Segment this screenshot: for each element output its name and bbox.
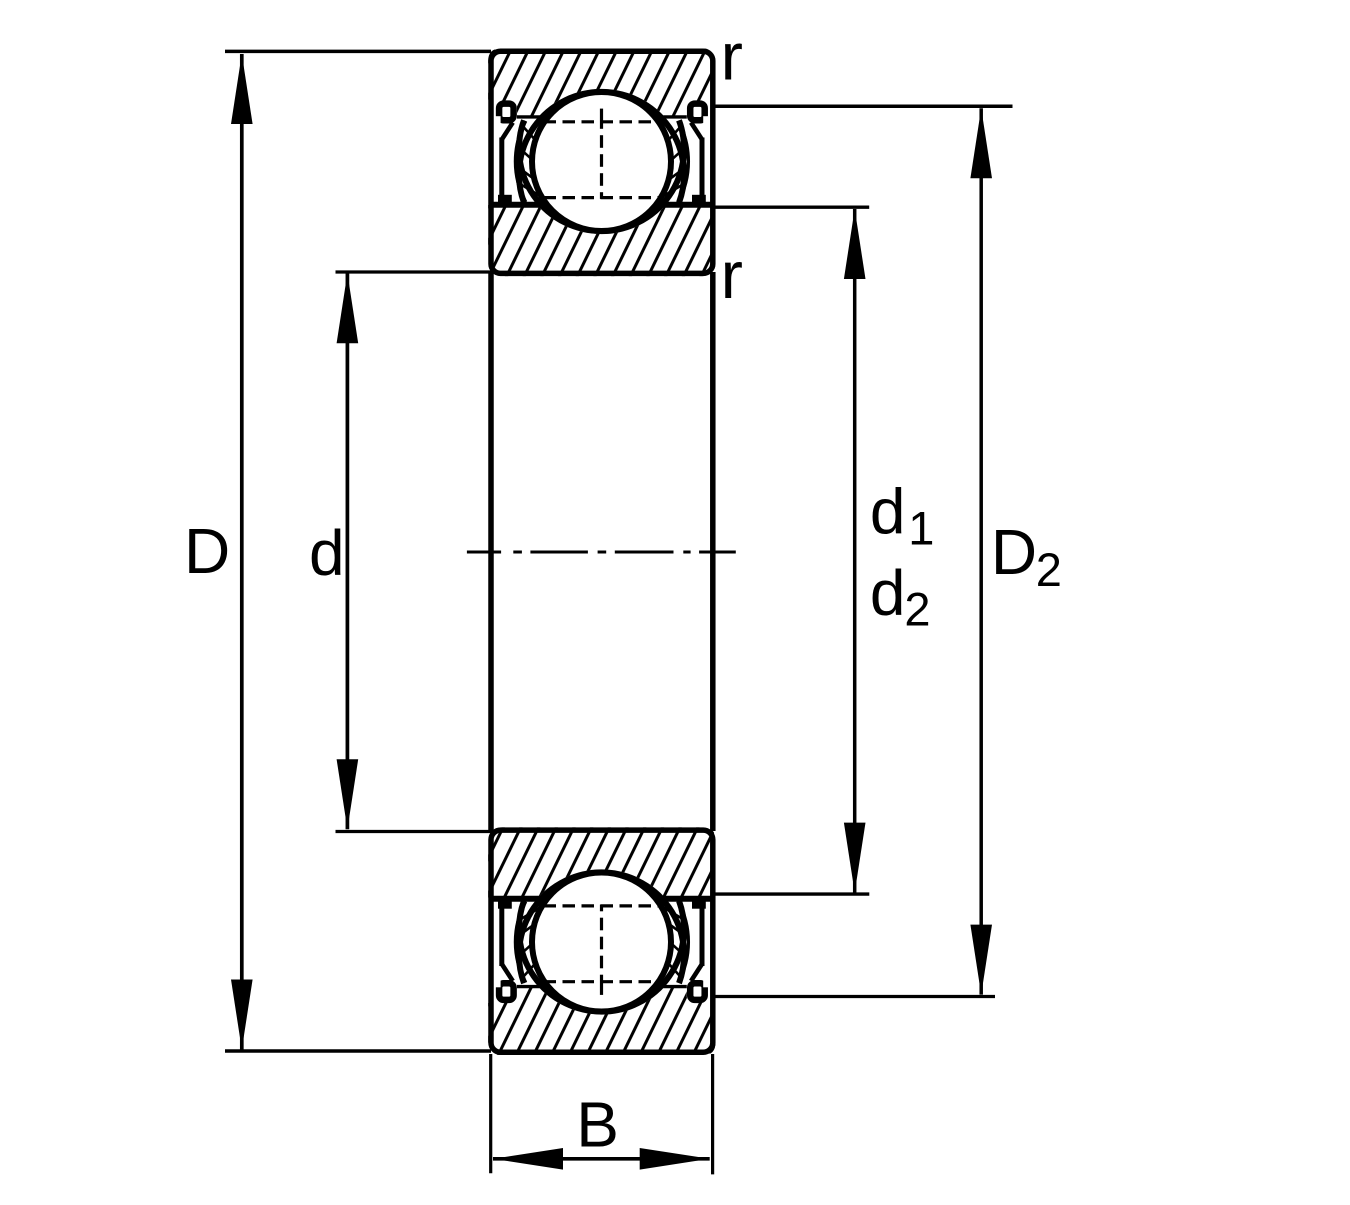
- svg-text:2: 2: [904, 583, 930, 636]
- svg-text:1: 1: [908, 502, 934, 555]
- svg-text:r: r: [721, 20, 743, 95]
- svg-text:r: r: [721, 238, 743, 313]
- svg-text:d: d: [309, 517, 345, 589]
- svg-text:D: D: [184, 515, 230, 587]
- svg-text:D: D: [991, 516, 1037, 588]
- svg-text:2: 2: [1036, 543, 1062, 596]
- svg-text:d: d: [870, 557, 906, 629]
- svg-text:d: d: [870, 475, 906, 547]
- svg-text:B: B: [576, 1089, 619, 1161]
